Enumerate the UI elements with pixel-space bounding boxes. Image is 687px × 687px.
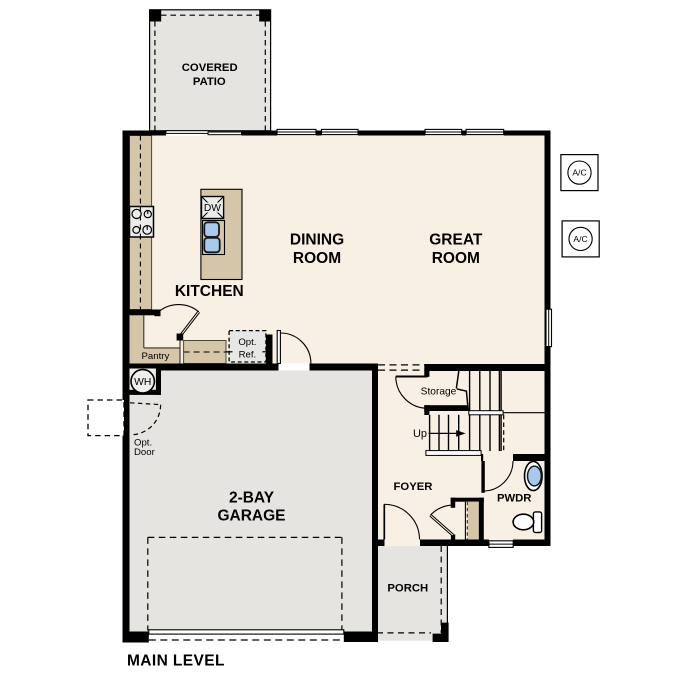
svg-text:2-BAY: 2-BAY xyxy=(229,489,275,506)
svg-text:KITCHEN: KITCHEN xyxy=(175,283,244,300)
svg-text:GARAGE: GARAGE xyxy=(217,508,285,525)
svg-text:PORCH: PORCH xyxy=(387,583,428,595)
svg-text:GREAT: GREAT xyxy=(429,232,483,249)
svg-text:FOYER: FOYER xyxy=(394,481,433,493)
svg-text:Ref.: Ref. xyxy=(239,350,257,361)
svg-text:ROOM: ROOM xyxy=(432,250,480,267)
svg-text:A/C: A/C xyxy=(573,234,587,244)
svg-text:Up: Up xyxy=(413,428,427,440)
svg-text:Door: Door xyxy=(134,447,156,458)
svg-text:COVERED: COVERED xyxy=(182,62,238,74)
svg-text:MAIN LEVEL: MAIN LEVEL xyxy=(127,652,225,669)
svg-text:PATIO: PATIO xyxy=(193,76,226,88)
svg-text:WH: WH xyxy=(134,377,151,388)
svg-text:DW: DW xyxy=(204,203,221,214)
svg-text:PWDR: PWDR xyxy=(497,492,532,504)
svg-text:DINING: DINING xyxy=(290,232,344,249)
svg-text:Storage: Storage xyxy=(421,386,457,397)
svg-text:A/C: A/C xyxy=(572,168,586,178)
svg-text:Opt.: Opt. xyxy=(238,337,256,348)
svg-text:ROOM: ROOM xyxy=(293,250,341,267)
svg-text:Pantry: Pantry xyxy=(142,351,170,362)
